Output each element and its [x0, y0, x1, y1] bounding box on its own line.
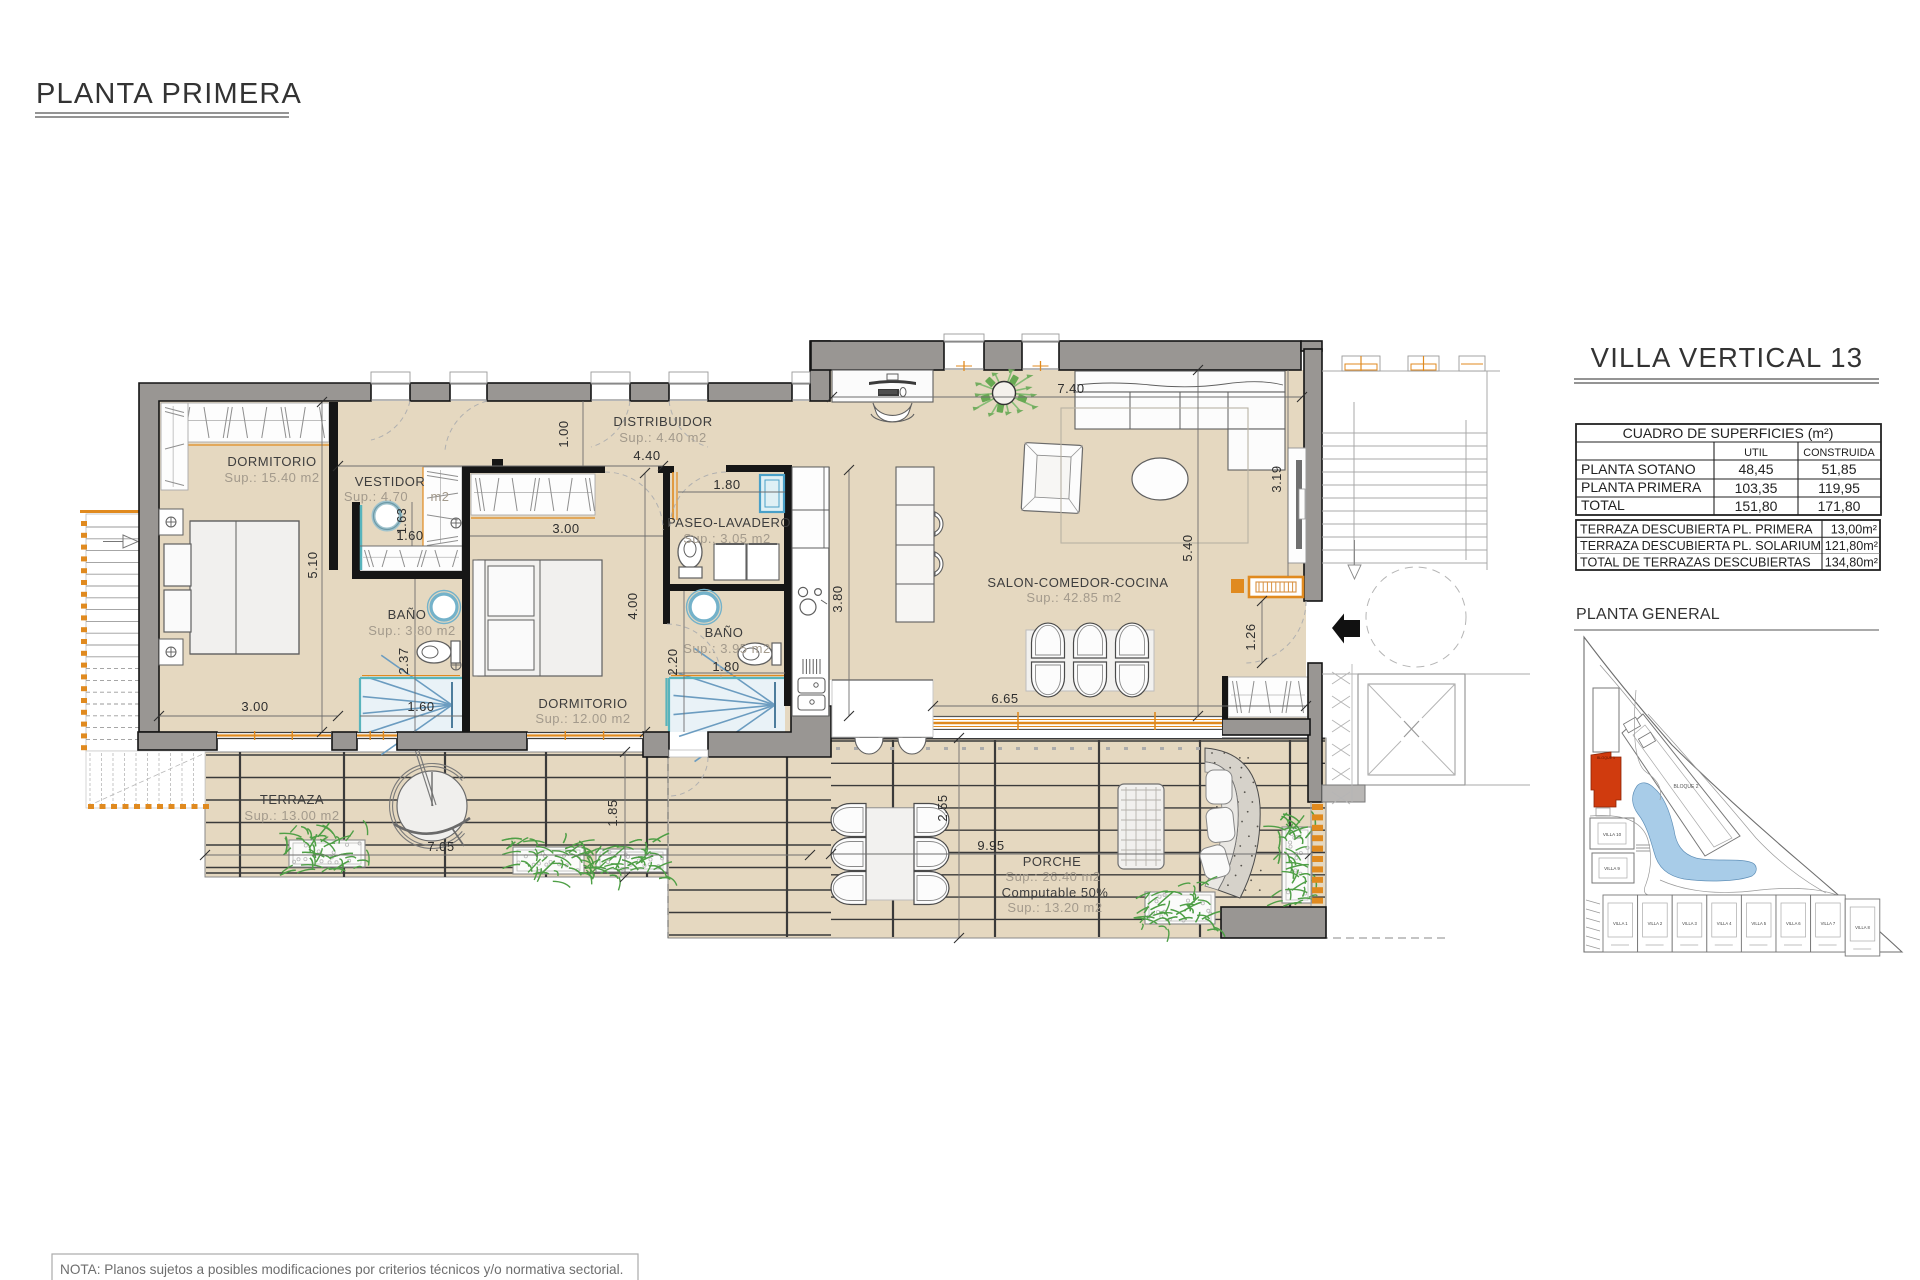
- svg-text:VILLA 5: VILLA 5: [1751, 921, 1766, 926]
- svg-text:121,80m²: 121,80m²: [1825, 539, 1878, 553]
- svg-text:VESTIDOR: VESTIDOR: [355, 474, 425, 489]
- svg-text:NOTA: Planos sujetos a posible: NOTA: Planos sujetos a posibles modifica…: [60, 1262, 623, 1277]
- svg-text:2.37: 2.37: [396, 647, 411, 674]
- svg-text:PLANTA SOTANO: PLANTA SOTANO: [1581, 461, 1696, 477]
- svg-text:Sup.: 12.00 m2: Sup.: 12.00 m2: [535, 711, 630, 726]
- svg-text:51,85: 51,85: [1821, 461, 1856, 477]
- svg-text:VILLA 2: VILLA 2: [1648, 921, 1663, 926]
- svg-text:PLANTA PRIMERA: PLANTA PRIMERA: [1581, 479, 1702, 495]
- svg-text:TOTAL: TOTAL: [1581, 497, 1625, 513]
- svg-text:VILLA VERTICAL 13: VILLA VERTICAL 13: [1591, 342, 1864, 373]
- svg-text:TERRAZA DESCUBIERTA PL. SOLARI: TERRAZA DESCUBIERTA PL. SOLARIUM: [1580, 539, 1821, 553]
- svg-text:DORMITORIO: DORMITORIO: [227, 454, 316, 469]
- svg-text:1.80: 1.80: [712, 659, 739, 674]
- svg-text:4.40: 4.40: [633, 448, 660, 463]
- svg-text:BAÑO: BAÑO: [705, 625, 744, 640]
- svg-text:PASEO-LAVADERO: PASEO-LAVADERO: [667, 515, 791, 530]
- svg-text:Sup.: 15.40 m2: Sup.: 15.40 m2: [224, 470, 319, 485]
- svg-text:UTIL: UTIL: [1744, 447, 1768, 459]
- svg-text:Sup.: 26.40 m2: Sup.: 26.40 m2: [1005, 869, 1100, 884]
- svg-text:3.80: 3.80: [830, 585, 845, 612]
- svg-text:VILLA 6: VILLA 6: [1786, 921, 1801, 926]
- svg-text:3.00: 3.00: [241, 699, 268, 714]
- svg-text:Sup.: 13.20 m2: Sup.: 13.20 m2: [1007, 900, 1102, 915]
- svg-text:13,00m²: 13,00m²: [1831, 523, 1877, 537]
- svg-text:4.00: 4.00: [625, 592, 640, 619]
- svg-text:171,80: 171,80: [1818, 498, 1861, 514]
- svg-text:BLOQUE 1: BLOQUE 1: [1597, 756, 1615, 760]
- svg-text:PORCHE: PORCHE: [1023, 854, 1082, 869]
- svg-text:CUADRO DE SUPERFICIES (m²): CUADRO DE SUPERFICIES (m²): [1623, 425, 1834, 441]
- svg-text:m2: m2: [430, 489, 449, 504]
- svg-text:BLOQUE 2: BLOQUE 2: [1673, 784, 1698, 790]
- svg-text:Sup.: 13.00 m2: Sup.: 13.00 m2: [244, 808, 339, 823]
- svg-text:CONSTRUIDA: CONSTRUIDA: [1803, 447, 1875, 459]
- svg-text:Sup.: 3.05 m2: Sup.: 3.05 m2: [683, 531, 770, 546]
- svg-text:1.60: 1.60: [407, 699, 434, 714]
- svg-text:1.80: 1.80: [713, 477, 740, 492]
- svg-text:151,80: 151,80: [1735, 498, 1778, 514]
- svg-text:2.55: 2.55: [935, 794, 950, 821]
- svg-text:VILLA 3: VILLA 3: [1682, 921, 1697, 926]
- svg-text:DORMITORIO: DORMITORIO: [538, 696, 627, 711]
- svg-text:BAÑO: BAÑO: [388, 607, 427, 622]
- svg-text:1.26: 1.26: [1243, 623, 1258, 650]
- svg-text:TERRAZA DESCUBIERTA PL. PRIMER: TERRAZA DESCUBIERTA PL. PRIMERA: [1580, 523, 1813, 537]
- svg-text:VILLA 9: VILLA 9: [1604, 866, 1620, 871]
- svg-text:VILLA 8: VILLA 8: [1855, 925, 1870, 930]
- svg-text:Sup.: 3.95 m2: Sup.: 3.95 m2: [683, 641, 770, 656]
- svg-text:VILLA 4: VILLA 4: [1717, 921, 1732, 926]
- svg-text:Sup.: 4.40 m2: Sup.: 4.40 m2: [619, 430, 706, 445]
- svg-text:48,45: 48,45: [1738, 461, 1773, 477]
- svg-text:119,95: 119,95: [1818, 480, 1860, 496]
- svg-text:3.19: 3.19: [1269, 465, 1284, 492]
- svg-text:VILLA 7: VILLA 7: [1821, 921, 1836, 926]
- svg-text:6.65: 6.65: [991, 691, 1018, 706]
- svg-text:5.40: 5.40: [1180, 534, 1195, 561]
- svg-text:7.40: 7.40: [1057, 381, 1084, 396]
- svg-text:PLANTA PRIMERA: PLANTA PRIMERA: [36, 78, 302, 110]
- svg-text:VILLA 1: VILLA 1: [1613, 921, 1628, 926]
- svg-text:103,35: 103,35: [1735, 480, 1778, 496]
- svg-text:Sup.: 4.70: Sup.: 4.70: [344, 489, 408, 504]
- svg-text:DISTRIBUIDOR: DISTRIBUIDOR: [613, 414, 712, 429]
- svg-text:5.10: 5.10: [305, 551, 320, 578]
- svg-text:SALON-COMEDOR-COCINA: SALON-COMEDOR-COCINA: [987, 575, 1168, 590]
- svg-text:1.85: 1.85: [605, 799, 620, 826]
- svg-text:7.05: 7.05: [427, 839, 454, 854]
- svg-text:2.20: 2.20: [665, 648, 680, 675]
- svg-text:VILLA 10: VILLA 10: [1603, 832, 1622, 837]
- svg-text:TERRAZA: TERRAZA: [260, 792, 324, 807]
- svg-text:134,80m²: 134,80m²: [1825, 556, 1878, 570]
- svg-text:TOTAL DE TERRAZAS DESCUBIERTAS: TOTAL DE TERRAZAS DESCUBIERTAS: [1580, 556, 1811, 570]
- svg-text:PLANTA GENERAL: PLANTA GENERAL: [1576, 606, 1720, 623]
- svg-text:Sup.: 3.80 m2: Sup.: 3.80 m2: [368, 623, 455, 638]
- svg-text:9.95: 9.95: [977, 838, 1004, 853]
- svg-text:Computable 50%: Computable 50%: [1002, 885, 1109, 900]
- svg-text:3.00: 3.00: [552, 521, 579, 536]
- svg-text:Sup.: 42.85 m2: Sup.: 42.85 m2: [1026, 590, 1121, 605]
- svg-text:1.60: 1.60: [396, 528, 423, 543]
- svg-text:1.00: 1.00: [556, 420, 571, 447]
